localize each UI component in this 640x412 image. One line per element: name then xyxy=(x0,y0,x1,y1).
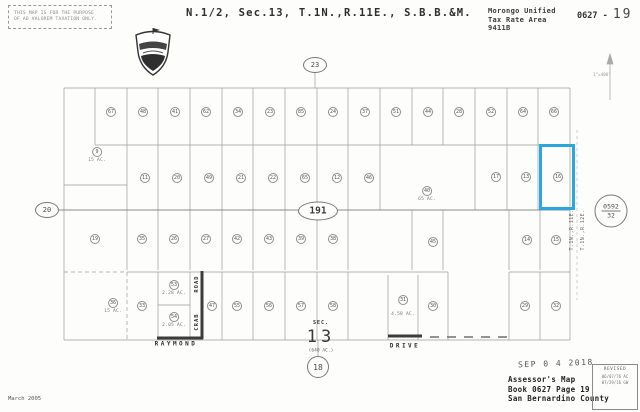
section-area: (640 AC.) xyxy=(309,349,334,354)
parcel-area: 2.28 AC. xyxy=(162,291,186,296)
page-title: N.1/2, Sec.13, T.1N.,R.11E., S.B.B.&M. xyxy=(186,7,472,19)
parcel-54: 542.05 AC. xyxy=(162,312,186,328)
parcel-area: 4.58 AC. xyxy=(391,312,415,317)
parcel-number: 19 xyxy=(90,234,100,244)
parcel-62: 62 xyxy=(201,107,211,117)
parcel-35: 35 xyxy=(137,234,147,244)
parcel-number: 52 xyxy=(486,107,496,117)
parcel-49: 49 xyxy=(204,173,214,183)
tax-district: Morongo Unified xyxy=(488,7,556,16)
book-prefix: 0627 - xyxy=(577,11,608,21)
section-number: 13 xyxy=(307,327,335,347)
parcel-number: 53 xyxy=(169,280,179,290)
parcel-number: 34 xyxy=(233,107,243,117)
map-scale: 1"=400' xyxy=(593,72,611,77)
parcel-34: 34 xyxy=(233,107,243,117)
parcel-53: 532.28 AC. xyxy=(162,280,186,296)
assessor-map-page: THIS MAP IS FOR THE PURPOSE OF AD VALORE… xyxy=(0,0,640,412)
parcel-number: 64 xyxy=(518,107,528,117)
parcel-number: 40 xyxy=(422,186,432,196)
county-seal-icon xyxy=(126,26,180,78)
purpose-stamp: THIS MAP IS FOR THE PURPOSE OF AD VALORE… xyxy=(8,5,112,29)
parcel-number: 20 xyxy=(172,173,182,183)
parcel-12: 12 xyxy=(332,173,342,183)
parcel-85: 85 xyxy=(296,107,306,117)
parcel-28: 28 xyxy=(454,107,464,117)
parcel-17: 17 xyxy=(491,172,501,182)
tax-rate-area-block: Morongo Unified Tax Rate Area 9411B xyxy=(488,7,556,33)
parcel-37: 37 xyxy=(360,107,370,117)
parcel-number: 13 xyxy=(521,172,531,182)
parcel-area: 15 AC. xyxy=(104,309,122,314)
parcel-number: 66 xyxy=(549,107,559,117)
township-label-east: T.1N.,R.12E. xyxy=(580,210,586,251)
section-label: SEC. xyxy=(313,320,329,326)
parcel-number: 49 xyxy=(204,173,214,183)
parcel-number: 38 xyxy=(328,234,338,244)
parcel-number: 15 xyxy=(551,235,561,245)
parcel-55: 55 xyxy=(232,301,242,311)
parcel-number: 58 xyxy=(328,301,338,311)
parcel-number: 39 xyxy=(296,234,306,244)
parcel-56: 56 xyxy=(264,301,274,311)
parcel-43: 43 xyxy=(264,234,274,244)
page-number: 19 xyxy=(613,7,633,22)
parcel-65: 65 xyxy=(300,173,310,183)
parcel-number: 9 xyxy=(92,147,102,157)
parcel-19: 19 xyxy=(90,234,100,244)
parcel-29: 29 xyxy=(520,301,530,311)
parcel-21: 21 xyxy=(236,173,246,183)
parcel-46: 46 xyxy=(364,173,374,183)
parcel-number: 41 xyxy=(170,107,180,117)
parcel-number: 45 xyxy=(428,237,438,247)
parcel-58: 58 xyxy=(328,301,338,311)
parcel-24: 24 xyxy=(328,107,338,117)
parcel-30: 30 xyxy=(428,301,438,311)
parcel-number: 56 xyxy=(264,301,274,311)
parcel-42: 42 xyxy=(232,234,242,244)
parcel-number: 14 xyxy=(522,235,532,245)
map-ref-circle: 0592 32 xyxy=(595,195,628,228)
revised-box: REVISED 06/07/76 AC 07/29/16 GW xyxy=(592,364,638,410)
adjacent-page-top: 23 xyxy=(303,57,327,73)
parcel-27: 27 xyxy=(201,234,211,244)
parcel-44: 44 xyxy=(423,107,433,117)
parcel-9: 915 AC. xyxy=(88,147,106,163)
parcel-20: 20 xyxy=(172,173,182,183)
parcel-number: 85 xyxy=(296,107,306,117)
parcel-number: 32 xyxy=(551,301,561,311)
north-arrow-icon xyxy=(607,54,613,100)
ref-page: 32 xyxy=(607,212,615,220)
parcel-41: 41 xyxy=(170,107,180,117)
highway-marker: 191 xyxy=(298,202,338,221)
parcel-number: 11 xyxy=(140,173,150,183)
parcel-64: 64 xyxy=(518,107,528,117)
parcel-31: 314.58 AC. xyxy=(391,295,415,317)
parcel-23: 23 xyxy=(265,107,275,117)
crab-road-label-crab: CRAB xyxy=(194,313,200,330)
parcel-number: 29 xyxy=(520,301,530,311)
parcel-number: 17 xyxy=(491,172,501,182)
parcel-number: 47 xyxy=(207,301,217,311)
parcel-number: 30 xyxy=(428,301,438,311)
parcel-number: 26 xyxy=(169,234,179,244)
parcel-38: 38 xyxy=(328,234,338,244)
parcel-number: 22 xyxy=(268,173,278,183)
parcel-52: 52 xyxy=(486,107,496,117)
parcel-number: 67 xyxy=(106,107,116,117)
road-label-raymond: RAYMOND xyxy=(155,341,198,348)
parcel-number: 44 xyxy=(423,107,433,117)
parcel-26: 26 xyxy=(169,234,179,244)
road-label-drive: DRIVE xyxy=(390,343,421,350)
parcel-47: 47 xyxy=(207,301,217,311)
parcel-14: 14 xyxy=(522,235,532,245)
parcel-15: 15 xyxy=(551,235,561,245)
parcel-number: 24 xyxy=(328,107,338,117)
parcel-66: 66 xyxy=(549,107,559,117)
parcel-number: 21 xyxy=(236,173,246,183)
ref-book: 0592 xyxy=(601,203,621,212)
map-date: March 2005 xyxy=(8,396,41,402)
purpose-stamp-line2: OF AD VALOREM TAXATION ONLY. xyxy=(14,17,108,23)
parcel-number: 46 xyxy=(364,173,374,183)
parcel-33: 33 xyxy=(137,301,147,311)
parcel-number: 57 xyxy=(296,301,306,311)
book-page-number: 0627 - 19 xyxy=(577,7,633,22)
parcel-number: 12 xyxy=(332,173,342,183)
parcel-number: 43 xyxy=(264,234,274,244)
parcel-39: 39 xyxy=(296,234,306,244)
parcel-number: 27 xyxy=(201,234,211,244)
parcel-number: 51 xyxy=(391,107,401,117)
adjacent-page-bottom: 18 xyxy=(307,356,329,378)
tax-rate-area-code: 9411B xyxy=(488,24,556,33)
parcel-number: 28 xyxy=(454,107,464,117)
parcel-13: 13 xyxy=(521,172,531,182)
parcel-number: 23 xyxy=(265,107,275,117)
parcel-number: 65 xyxy=(300,173,310,183)
township-label-west: T.1N.,R.11E. xyxy=(569,210,575,251)
parcel-number: 31 xyxy=(398,295,408,305)
crab-road-label-road: ROAD xyxy=(194,275,200,292)
parcel-number: 54 xyxy=(169,312,179,322)
revised-title: REVISED xyxy=(593,367,637,372)
parcel-51: 51 xyxy=(391,107,401,117)
revised-entry: 07/29/16 GW xyxy=(593,380,637,386)
parcel-number: 48 xyxy=(138,107,148,117)
parcel-number: 42 xyxy=(232,234,242,244)
parcel-36: 3615 AC. xyxy=(104,298,122,314)
parcel-number: 62 xyxy=(201,107,211,117)
parcel-number: 33 xyxy=(137,301,147,311)
parcel-67: 67 xyxy=(106,107,116,117)
parcel-48: 48 xyxy=(138,107,148,117)
parcel-number: 35 xyxy=(137,234,147,244)
adjacent-page-left: 20 xyxy=(35,202,59,218)
parcel-area: 2.05 AC. xyxy=(162,323,186,328)
parcel-number: 37 xyxy=(360,107,370,117)
parcel-22: 22 xyxy=(268,173,278,183)
parcel-11: 11 xyxy=(140,173,150,183)
parcel-area: 65 AC. xyxy=(418,197,436,202)
parcel-number: 36 xyxy=(108,298,118,308)
parcel-number: 55 xyxy=(232,301,242,311)
selected-parcel-highlight[interactable] xyxy=(539,144,575,210)
parcel-40: 4065 AC. xyxy=(418,186,436,202)
parcel-57: 57 xyxy=(296,301,306,311)
tax-rate-area-label: Tax Rate Area xyxy=(488,16,556,25)
parcel-32: 32 xyxy=(551,301,561,311)
parcel-area: 15 AC. xyxy=(88,158,106,163)
parcel-45: 45 xyxy=(428,237,438,247)
